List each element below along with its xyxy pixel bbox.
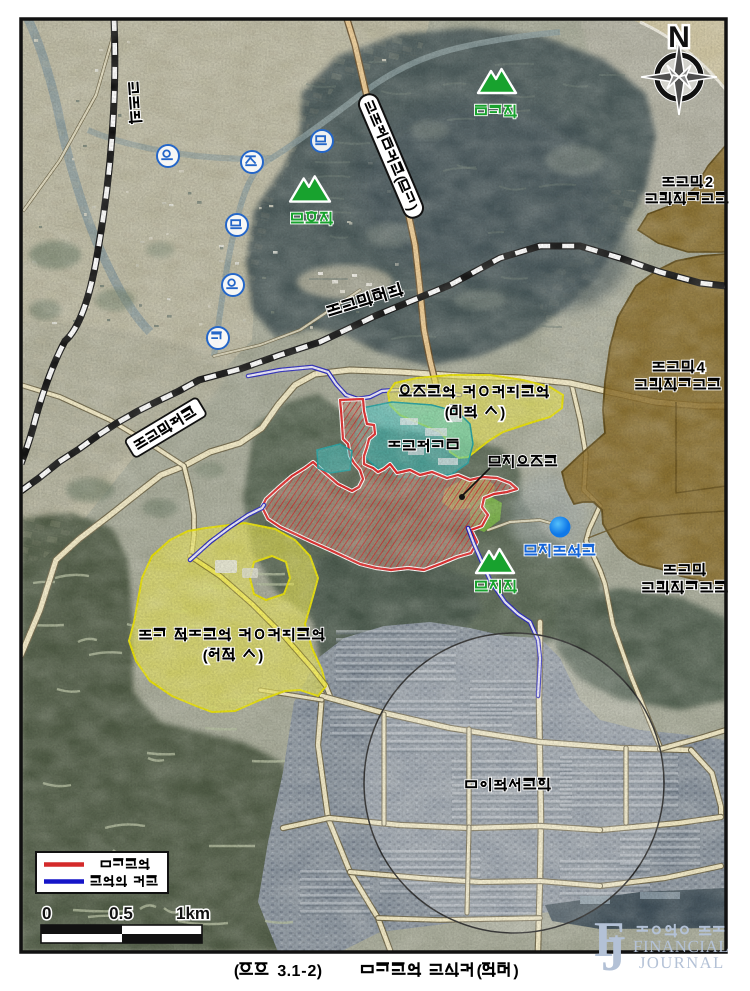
svg-text:): ) <box>317 963 322 980</box>
svg-text:(: ( <box>203 647 208 664</box>
svg-text:(: ( <box>234 963 240 980</box>
svg-text:(: ( <box>445 404 450 421</box>
svg-text:2: 2 <box>705 175 713 191</box>
svg-text:3: 3 <box>277 963 286 980</box>
svg-text:1: 1 <box>291 963 300 980</box>
svg-text:2: 2 <box>307 963 316 980</box>
svg-text:): ) <box>500 404 505 421</box>
svg-text:J: J <box>601 925 626 981</box>
svg-text:4: 4 <box>697 359 706 376</box>
svg-text:(: ( <box>477 963 483 980</box>
svg-text:N: N <box>668 21 690 54</box>
svg-text:JOURNAL: JOURNAL <box>639 953 725 972</box>
svg-text:): ) <box>513 963 518 980</box>
svg-text:1km: 1km <box>176 904 210 923</box>
svg-text:0.5: 0.5 <box>109 904 133 923</box>
svg-text:): ) <box>258 647 263 664</box>
svg-text:0: 0 <box>42 904 51 923</box>
svg-text:-: - <box>301 963 306 980</box>
